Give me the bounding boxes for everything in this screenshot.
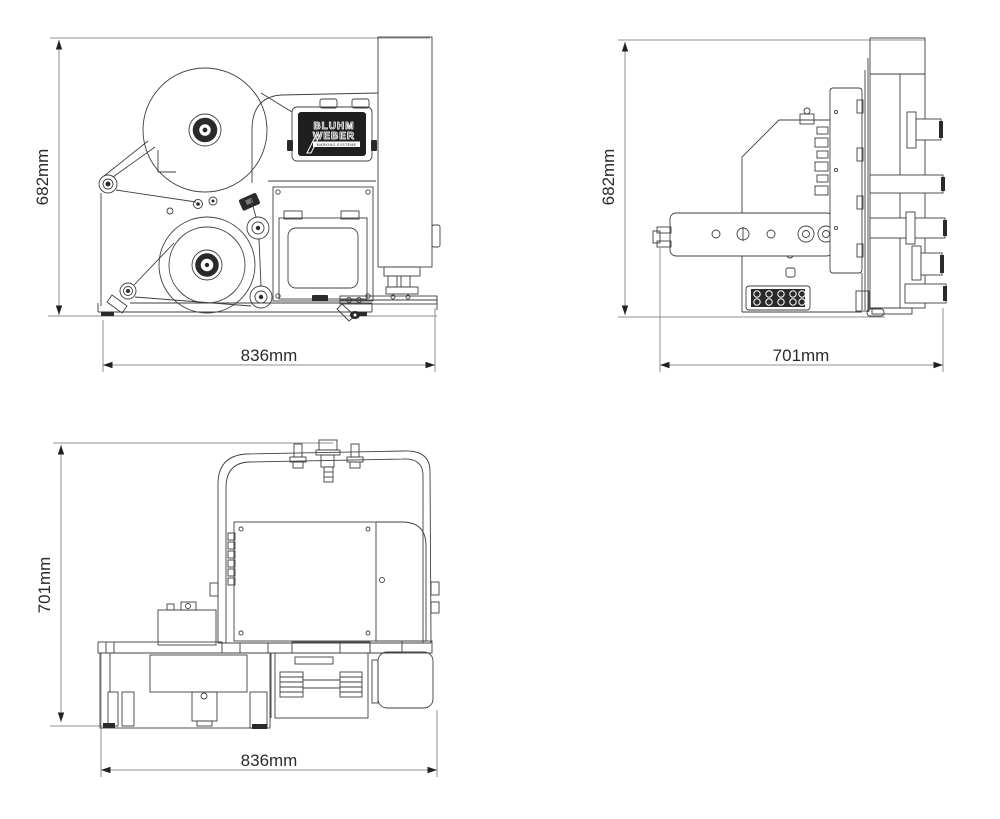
- top-height-label: 701mm: [35, 557, 54, 614]
- connector-block: [746, 268, 810, 310]
- front-view-dimensions: 682mm 836mm: [33, 38, 437, 372]
- applicator-bar: [337, 296, 437, 321]
- supply-roll: [143, 68, 267, 192]
- electronics-panel: [273, 187, 373, 301]
- brand-tagline: MARKING-SYSTEME: [317, 143, 357, 147]
- pneumatic-fittings: [800, 108, 828, 195]
- side-view: 682mm 701mm: [599, 38, 947, 372]
- front-width-label: 836mm: [241, 346, 298, 365]
- applicator-tower: [378, 37, 440, 299]
- brand-label: BLUHM WEBER MARKING-SYSTEME: [287, 107, 377, 161]
- roll-mounting-plate: [830, 88, 863, 273]
- roller-spindles: [870, 112, 947, 303]
- valve-box: [372, 652, 433, 708]
- slide-arm: [653, 213, 834, 256]
- protection-frame: [210, 451, 439, 653]
- label-sensor: [238, 192, 260, 211]
- front-view: 682mm 836mm: [33, 37, 440, 372]
- top-view-machine: [98, 440, 439, 729]
- side-view-dimensions: 682mm 701mm: [599, 40, 943, 372]
- top-baseplate: [98, 642, 222, 653]
- applicator-assembly: [275, 642, 370, 718]
- front-height-label: 682mm: [33, 149, 52, 206]
- technical-drawing: 682mm 836mm: [0, 0, 1000, 819]
- guide-roller-top: [247, 217, 269, 239]
- dancer-roller-bottom: [107, 283, 136, 313]
- side-view-machine: [653, 38, 947, 316]
- brand-line2: WEBER: [313, 131, 355, 142]
- top-view-dimensions: 701mm 836mm: [35, 443, 437, 777]
- traverse-assembly: [100, 653, 270, 729]
- side-width-label: 701mm: [773, 346, 830, 365]
- drawing-canvas: 682mm 836mm: [0, 0, 1000, 819]
- dancer-roller-top: [99, 175, 117, 193]
- guide-roller-bottom: [250, 286, 272, 308]
- front-view-machine: BLUHM WEBER MARKING-SYSTEME: [98, 37, 440, 321]
- rewind-roll: [159, 217, 255, 313]
- print-engine: [228, 522, 426, 641]
- top-view: 701mm 836mm: [35, 440, 439, 777]
- side-height-label: 682mm: [599, 149, 618, 206]
- motor-box: [158, 602, 216, 645]
- top-width-label: 836mm: [241, 751, 298, 770]
